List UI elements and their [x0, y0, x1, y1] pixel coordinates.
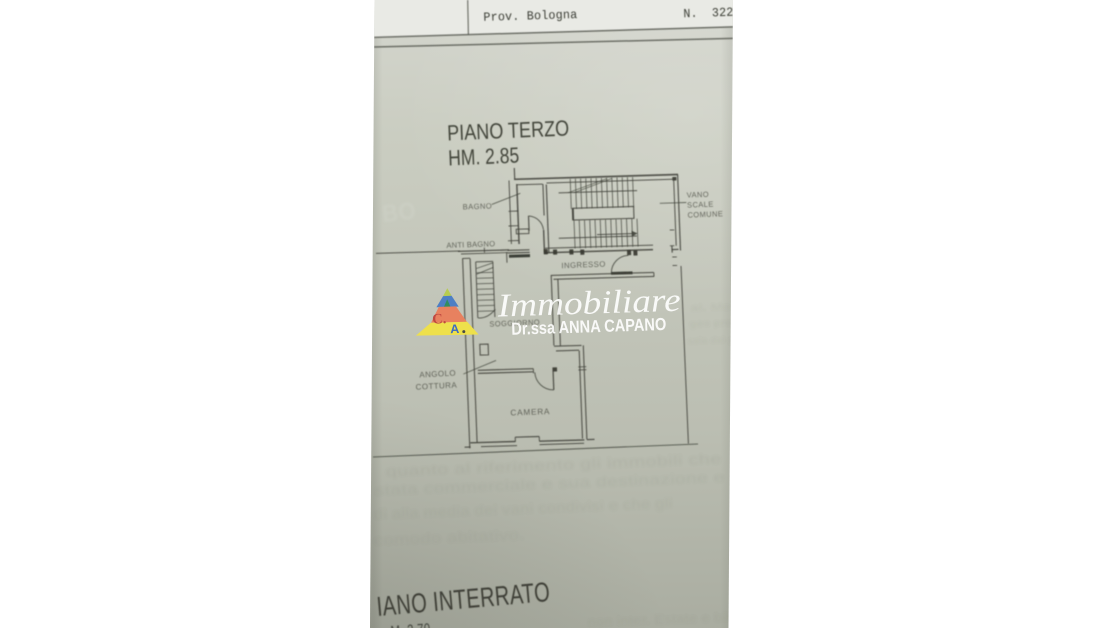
svg-text:ANGOLO: ANGOLO	[419, 369, 456, 380]
svg-text:BAGNO: BAGNO	[463, 201, 493, 211]
svg-text:comodo abitativo.: comodo abitativo.	[374, 527, 525, 548]
svg-text:COTTURA: COTTURA	[415, 381, 457, 392]
svg-text:VANO: VANO	[687, 190, 710, 200]
svg-text:Dr.ssa ANNA CAPANO: Dr.ssa ANNA CAPANO	[511, 314, 667, 339]
svg-text:PIANO TERZO: PIANO TERZO	[447, 115, 570, 145]
svg-text:ANTI BAGNO: ANTI BAGNO	[446, 239, 495, 250]
svg-text:INGRESSO: INGRESSO	[561, 260, 606, 271]
svg-text:HM. 2.85: HM. 2.85	[448, 143, 520, 171]
svg-text:Prov. Bologna: Prov. Bologna	[483, 8, 578, 25]
svg-text:A: A	[450, 322, 460, 336]
svg-text:M. 2.70: M. 2.70	[390, 621, 431, 628]
svg-text:geo pro: geo pro	[690, 318, 732, 329]
svg-text:C.: C.	[432, 311, 447, 327]
svg-text:BO: BO	[381, 198, 418, 228]
svg-text:non inter. Estate e bil: non inter. Estate e bil	[588, 610, 730, 628]
svg-text:IANO INTERRATO: IANO INTERRATO	[375, 576, 551, 622]
svg-text:COMUNE: COMUNE	[687, 209, 723, 219]
svg-text:CAMERA: CAMERA	[510, 407, 550, 418]
svg-text:N. 322: N. 322	[683, 6, 733, 21]
svg-text:sala dal g: sala dal g	[688, 334, 734, 346]
svg-text:di alla media dei vani condivi: di alla media dei vani condivisi e che g…	[374, 496, 673, 522]
svg-text:al. Mo: al. Mo	[691, 302, 731, 313]
svg-text:SCALE: SCALE	[687, 200, 714, 210]
